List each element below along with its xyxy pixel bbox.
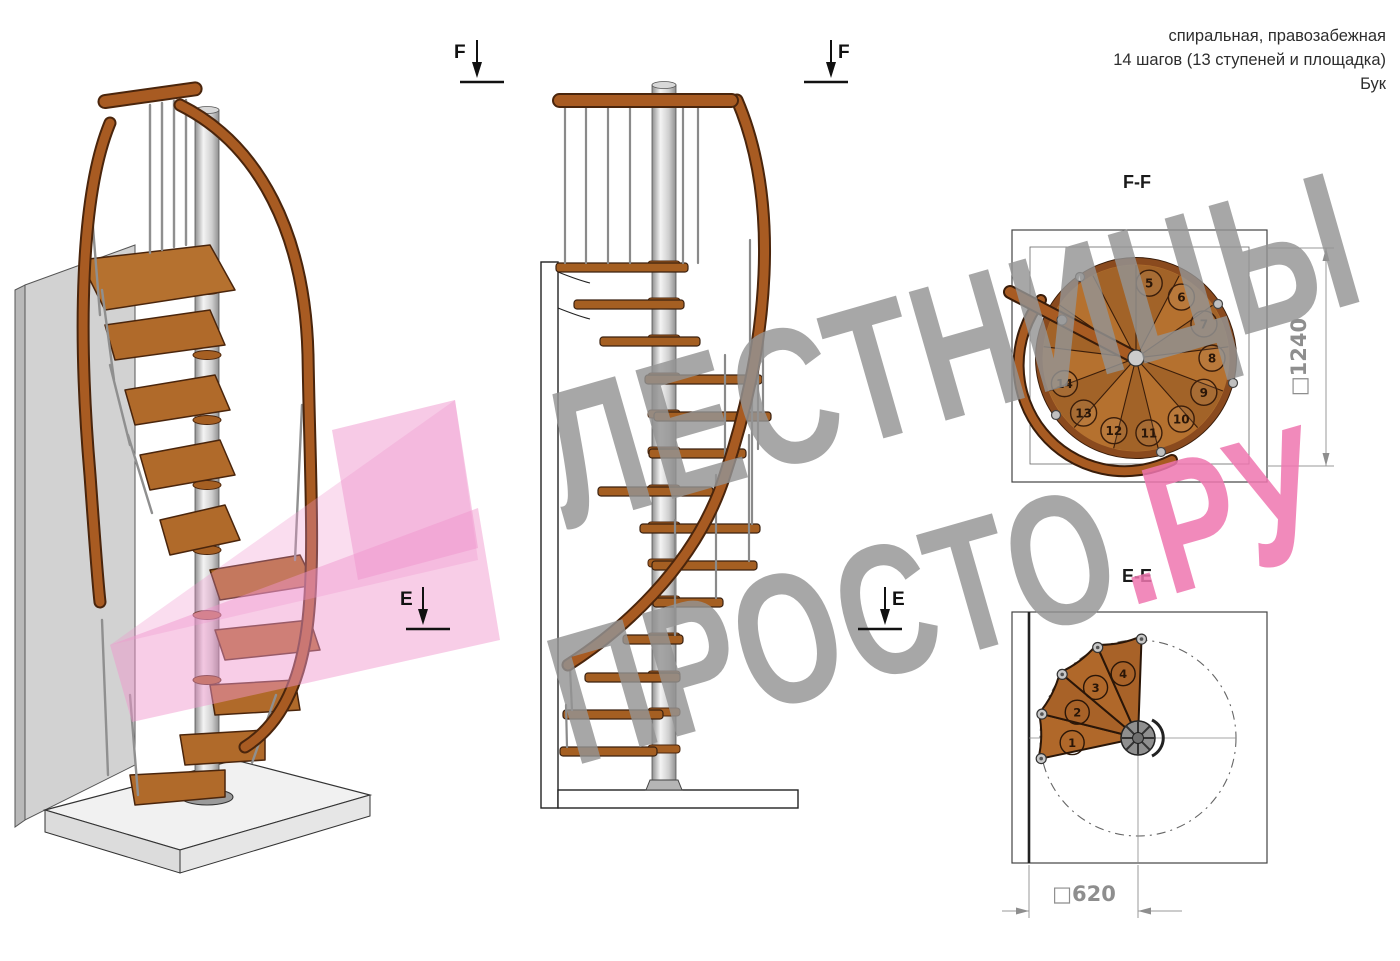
platform-bar bbox=[556, 263, 688, 272]
ff-pole-hub bbox=[1128, 350, 1144, 366]
ee-dimension-label: □620 bbox=[1052, 882, 1116, 906]
ee-dimension: □620 bbox=[1002, 865, 1182, 918]
ff-step-number: 5 bbox=[1145, 277, 1153, 291]
ee-step-number: 1 bbox=[1068, 736, 1076, 750]
ee-step-number: 2 bbox=[1073, 706, 1081, 720]
material-line: Бук bbox=[1113, 72, 1386, 96]
ff-step-number: 8 bbox=[1208, 352, 1216, 366]
ff-handrail-joint bbox=[1057, 315, 1067, 325]
ff-section-view: 567891011121314 □1240 bbox=[1000, 220, 1350, 490]
pole-base bbox=[646, 780, 682, 790]
ee-section-view: 1234 □620 bbox=[1000, 600, 1360, 961]
dim-arrow-left bbox=[1016, 908, 1029, 915]
drawing-sheet: спиральная, правозабежная 14 шагов (13 с… bbox=[0, 0, 1400, 961]
ee-step-number: 4 bbox=[1119, 667, 1127, 681]
center-pole bbox=[652, 85, 676, 790]
ff-step-number: 6 bbox=[1177, 291, 1185, 305]
wall-side-face bbox=[15, 285, 25, 827]
section-marker-e-right: E bbox=[850, 581, 914, 633]
section-arrow-icon bbox=[460, 40, 504, 82]
marker-letter-e: E bbox=[892, 589, 905, 610]
section-marker-f-left: F bbox=[448, 34, 512, 86]
ff-step-number: 14 bbox=[1056, 377, 1073, 391]
ff-step-number: 7 bbox=[1200, 317, 1208, 331]
marker-letter-f: F bbox=[454, 42, 466, 63]
dim-arrow-up bbox=[1323, 248, 1330, 261]
section-marker-f-right: F bbox=[796, 34, 860, 86]
ff-step-number: 11 bbox=[1141, 426, 1158, 440]
ee-step-number: 3 bbox=[1092, 681, 1100, 695]
ff-step-number: 10 bbox=[1173, 413, 1190, 427]
ee-hub-center bbox=[1133, 733, 1144, 744]
wall-outline bbox=[541, 262, 558, 808]
marker-letter-e: E bbox=[400, 589, 413, 610]
ff-step-number: 12 bbox=[1106, 424, 1123, 438]
dim-arrow-right bbox=[1138, 908, 1151, 915]
elevation-view bbox=[520, 80, 940, 820]
wall-brackets bbox=[558, 272, 590, 319]
steps-count-line: 14 шагов (13 ступеней и площадка) bbox=[1113, 48, 1386, 72]
stair-type-line: спиральная, правозабежная bbox=[1113, 24, 1386, 48]
dim-arrow-down bbox=[1323, 453, 1330, 466]
top-rail bbox=[553, 94, 738, 107]
ff-step-number: 9 bbox=[1200, 386, 1208, 400]
ff-dimension: □1240 bbox=[1267, 248, 1334, 466]
ff-view-title: F-F bbox=[1002, 172, 1272, 193]
marker-letter-f: F bbox=[838, 42, 850, 63]
ee-view-title: E-E bbox=[1002, 566, 1272, 587]
floor-outline bbox=[558, 790, 798, 808]
iso-view bbox=[10, 75, 410, 875]
pole-top-cap bbox=[652, 82, 676, 89]
section-marker-e-left: E bbox=[394, 581, 458, 633]
ff-step-number: 13 bbox=[1075, 407, 1092, 421]
ff-dimension-label: □1240 bbox=[1287, 318, 1311, 396]
title-block: спиральная, правозабежная 14 шагов (13 с… bbox=[1113, 24, 1386, 96]
